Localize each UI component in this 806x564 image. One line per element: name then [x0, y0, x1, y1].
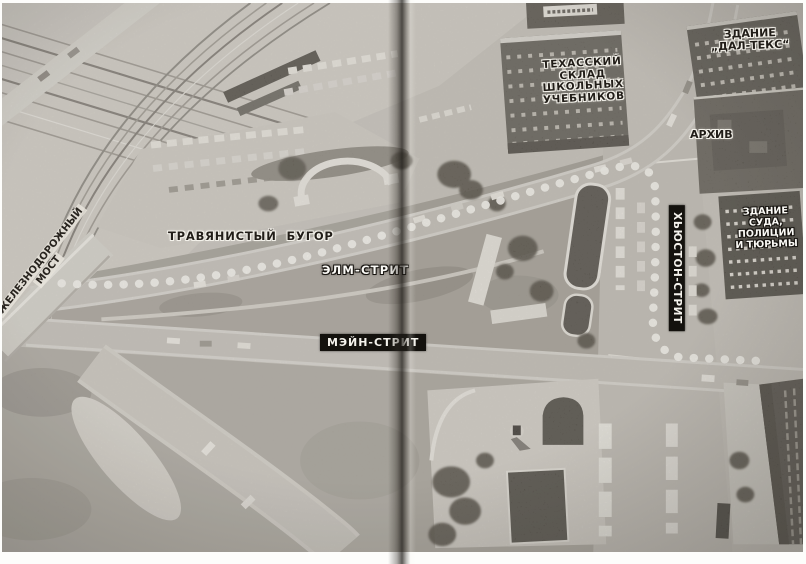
label-grassy-knoll: ТРАВЯНИСТЫЙ БУГОР — [168, 229, 334, 243]
label-school-book-depository: ТЕХАССКИЙ СКЛАД ШКОЛЬНЫХ УЧЕБНИКОВ — [536, 56, 630, 107]
label-main-street: МЭЙН-СТРИТ — [320, 334, 426, 351]
label-archive: АРХИВ — [690, 128, 733, 141]
aerial-photo: ТЕХАССКИЙ СКЛАД ШКОЛЬНЫХ УЧЕБНИКОВ ЗДАНИ… — [2, 3, 803, 552]
label-courts-building: ЗДАНИЕ СУДА, ПОЛИЦИИ И ТЮРЬМЫ — [725, 205, 803, 252]
label-dal-tex-building: ЗДАНИЕ „ДАЛ-ТЕКС“ — [706, 26, 795, 53]
book-page: ТЕХАССКИЙ СКЛАД ШКОЛЬНЫХ УЧЕБНИКОВ ЗДАНИ… — [0, 0, 806, 564]
label-elm-street: ЭЛМ-СТРИТ — [322, 263, 409, 277]
label-houston-street: ХЬЮСТОН-СТРИТ — [669, 205, 685, 331]
